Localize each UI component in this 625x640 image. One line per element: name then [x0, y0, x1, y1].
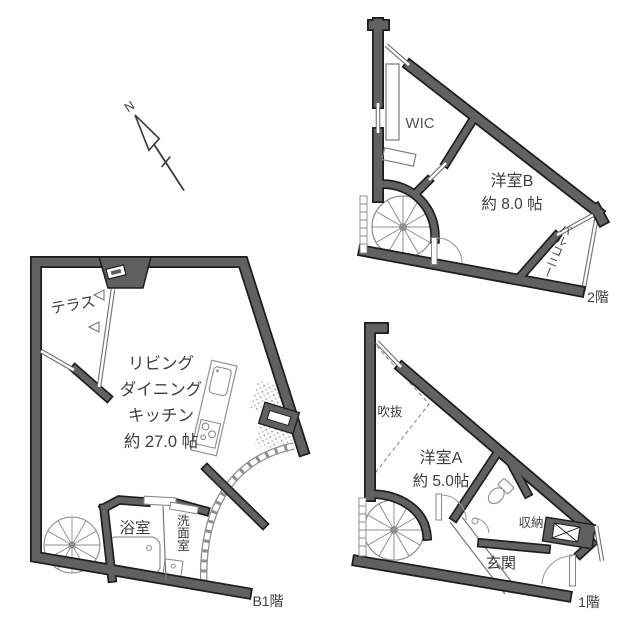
compass-arrowhead-icon: [129, 111, 162, 150]
toilet-icon: [485, 478, 514, 507]
room-label-entrance: 玄関: [486, 555, 516, 572]
north-compass: N: [119, 97, 190, 195]
toilet-door-swing: [473, 518, 489, 533]
1f-hatched-wall-strip: [359, 498, 366, 556]
floor-2f-plan: WIC 洋室B 約 8.0 帖 バルコニー 2階: [360, 23, 609, 305]
room-label-dining: ダイニング: [120, 380, 203, 399]
floor-b1-plan: テラス リビング ダイニング キッチン 約 27.0 帖 浴室 洗面室 B1階: [36, 257, 303, 609]
floor-label-1f: 1階: [578, 594, 600, 610]
room-label-kitchen: キッチン: [128, 407, 194, 425]
room-label-living: リビング: [128, 354, 194, 373]
room-label-terrace: テラス: [50, 293, 97, 318]
2f-shelf-outline: [382, 148, 416, 166]
wic-closet-outline: [386, 64, 399, 140]
floor-label-2f: 2階: [587, 289, 609, 305]
floorplan-svg: N: [0, 0, 625, 640]
room-label-room-b: 洋室B: [491, 172, 534, 190]
2f-stair-door-leaf: [432, 238, 438, 265]
room-size-room-b: 約 8.0 帖: [481, 195, 542, 213]
compass-north-label: N: [122, 98, 137, 115]
entrance-door-swing: [542, 556, 572, 584]
floor-label-b1: B1階: [252, 593, 283, 609]
room-a-door-leaf: [436, 494, 442, 520]
room-size-room-a: 約 5.0帖: [413, 472, 470, 490]
toilet-door-pivot: [472, 518, 478, 524]
room-size-ldk: 約 27.0 帖: [124, 432, 198, 451]
entrance-door-leaf: [570, 555, 576, 586]
room-label-room-a: 洋室A: [420, 449, 463, 467]
room-label-washroom: 洗面室: [175, 514, 189, 552]
room-label-storage: 収納: [518, 516, 543, 530]
window-marker-icon: [89, 322, 99, 332]
floorplan-canvas: N: [0, 0, 625, 640]
compass-tick: [159, 157, 172, 167]
2f-hatched-wall-strip: [360, 196, 367, 253]
room-label-wic: WIC: [405, 115, 434, 132]
room-label-void: 吹抜: [377, 404, 403, 419]
balcony-outline: [578, 214, 599, 291]
floor-1f-plan: 吹抜 洋室A 約 5.0帖 収納 玄関 1階: [358, 328, 602, 610]
window-marker-icon: [94, 290, 104, 300]
room-label-bathroom: 浴室: [119, 519, 150, 537]
